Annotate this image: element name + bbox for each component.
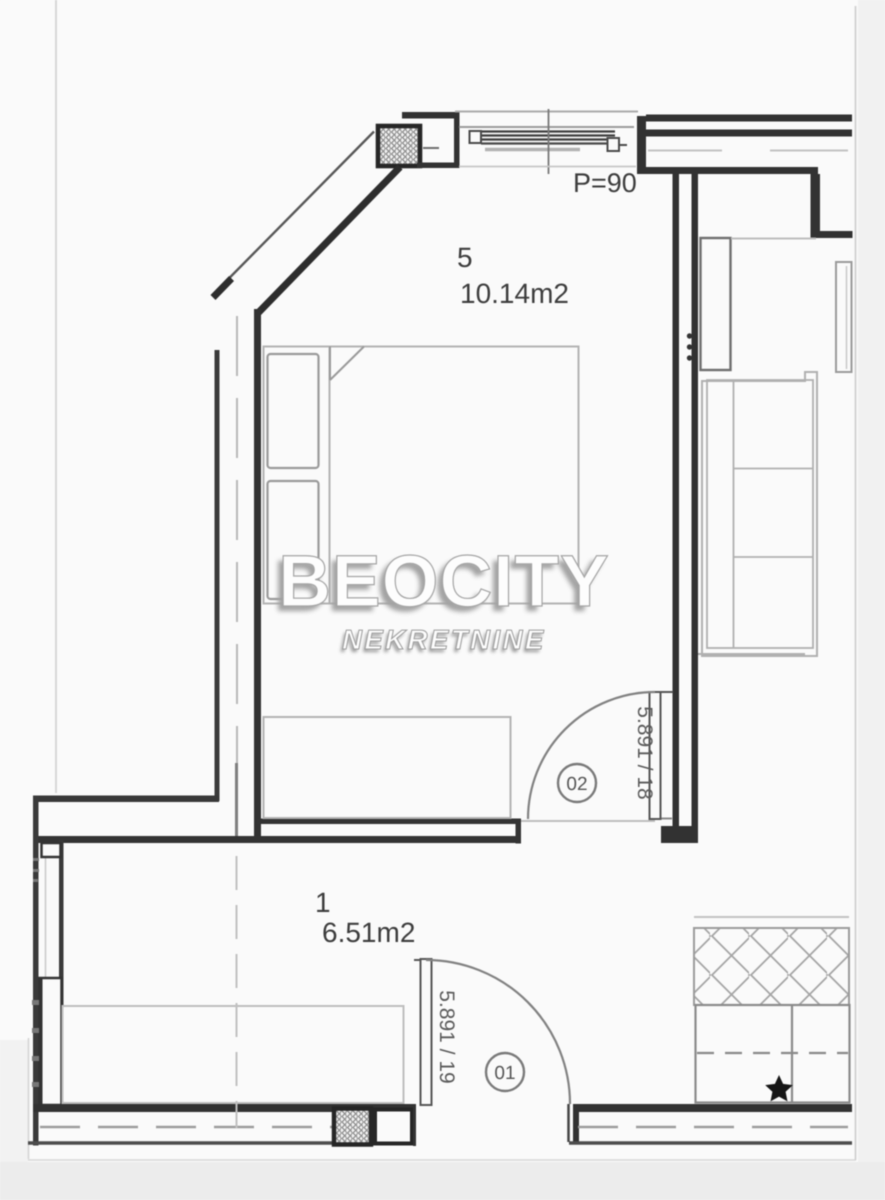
svg-text:1: 1	[315, 887, 331, 918]
svg-text:10.14m2: 10.14m2	[460, 278, 569, 309]
svg-text:5.891 / 19: 5.891 / 19	[435, 990, 458, 1083]
svg-text:6.51m2: 6.51m2	[322, 917, 415, 948]
svg-text:NEKRETNINE: NEKRETNINE	[342, 624, 546, 655]
svg-text:5: 5	[457, 242, 473, 273]
svg-text:P=90: P=90	[573, 168, 637, 198]
svg-text:BEOCITY: BEOCITY	[278, 541, 609, 622]
svg-text:02: 02	[566, 774, 587, 795]
svg-text:01: 01	[494, 1063, 515, 1084]
svg-text:5.891 / 18: 5.891 / 18	[633, 706, 656, 799]
